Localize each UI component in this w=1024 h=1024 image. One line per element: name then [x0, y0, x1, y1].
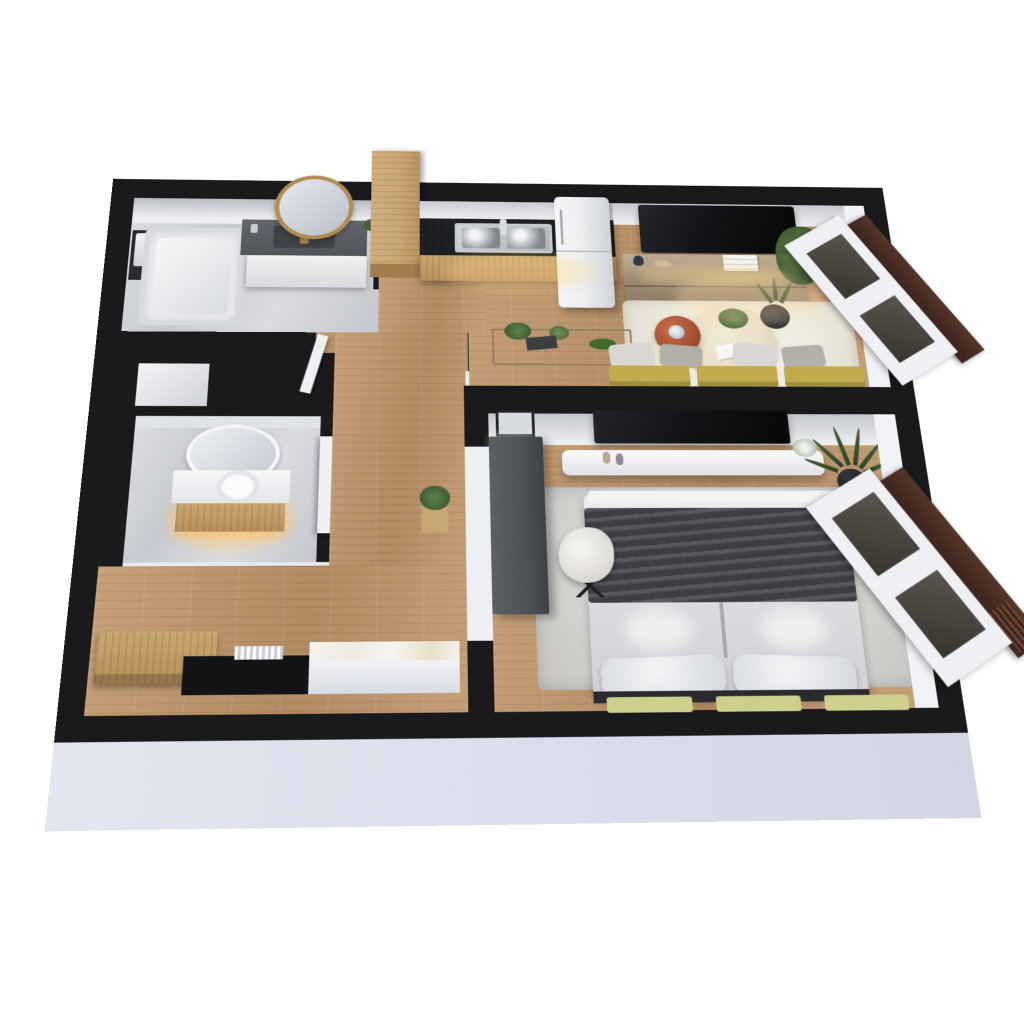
sofa-seat-3 — [783, 366, 865, 387]
vanity-cabinet — [246, 255, 367, 288]
floating-console — [562, 450, 826, 475]
floor-plan-scene — [0, 0, 1024, 1024]
sofa-seat-2 — [696, 366, 778, 387]
wc-oak-vanity — [175, 503, 286, 532]
desk-chair-fluffy-seat — [557, 527, 615, 583]
picture-frame-1 — [496, 410, 536, 437]
bench-cushion-3 — [824, 695, 910, 711]
bathtub-inner — [151, 238, 233, 315]
apartment-plan — [45, 179, 982, 832]
tall-oak-cabinet-base — [370, 264, 420, 278]
tall-oak-cabinet — [370, 151, 420, 276]
bed-headboard-edge — [588, 491, 840, 503]
bench-cushion-2 — [716, 696, 802, 712]
bedroom-tv — [593, 410, 791, 443]
decor-vase-dark — [633, 255, 644, 265]
hall-plant — [420, 486, 451, 510]
kitchen-floor-strip — [378, 277, 486, 333]
decor-bowl — [654, 260, 672, 268]
hallway-corridor-floor — [329, 332, 471, 565]
bench-cushion-1 — [606, 697, 693, 713]
hall-plant-stool — [422, 507, 449, 533]
bedroom-west-wall-cap2 — [467, 641, 494, 713]
sink-basin-left — [462, 227, 501, 248]
shaft-interior — [135, 363, 210, 406]
sink-basin-right — [507, 228, 546, 249]
doormat — [181, 655, 325, 695]
sink-faucet — [500, 219, 507, 235]
charcoal-desk — [489, 437, 550, 615]
sofa-seat-1 — [608, 365, 691, 386]
bedroom-west-wall-cap — [464, 413, 489, 446]
radiator — [234, 646, 283, 660]
console-vase-2 — [616, 453, 624, 465]
table-lamp — [668, 325, 685, 339]
fridge — [554, 197, 616, 308]
console-tray — [525, 335, 557, 350]
console-vase-1 — [602, 452, 610, 464]
front-facade-skirt — [45, 733, 982, 832]
toiletries — [250, 224, 258, 233]
marble-console-front — [308, 660, 460, 694]
marble-console-top — [309, 641, 460, 661]
